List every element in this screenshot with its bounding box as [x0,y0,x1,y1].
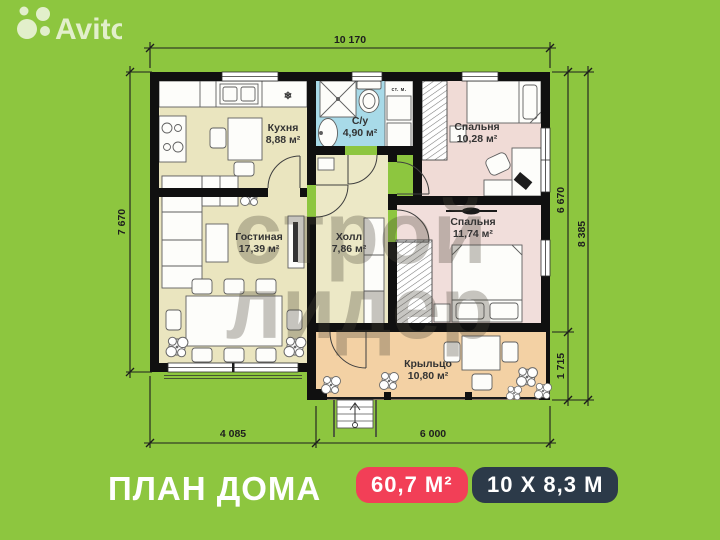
room-area: 17,39 м² [239,243,280,255]
listing-image: строй лидер Кухня 8,88 м² С/у 4,90 м² Сп… [0,0,720,540]
fridge-icon: ❄ [284,91,292,102]
window [462,72,498,81]
watermark-line2: лидер [226,258,495,357]
dim-right-total: 8 385 [576,221,588,247]
window [352,72,382,81]
dim-width-total: 10 170 [334,34,366,46]
room-area: 10,80 м² [408,370,449,382]
avito-dot-icon [20,7,29,16]
avito-dot-icon [40,26,50,36]
room-label: С/у [352,115,369,127]
dim-bottom-left: 4 085 [220,428,246,440]
plant-icon [166,337,188,357]
page-title: ПЛАН ДОМА [108,470,321,508]
dim-left-height: 7 670 [116,209,128,235]
bed-bedroom1 [467,81,541,123]
area-badge: 60,7 М² [356,467,468,503]
washing-machine-label: ст. м. [391,87,406,93]
room-label: Гостиная [235,231,282,243]
coffee-table [206,224,228,262]
floor-plan: строй лидер Кухня 8,88 м² С/у 4,90 м² Сп… [0,0,720,540]
room-area: 8,88 м² [266,134,301,146]
plant-icon [322,377,341,394]
room-area: 7,86 м² [332,243,367,255]
room-area: 4,90 м² [343,127,378,139]
wardrobe-bedroom1 [422,81,447,160]
dim-bottom-right: 6 000 [420,428,446,440]
window [541,128,550,192]
dim-right-upper: 6 670 [555,187,567,213]
room-label: Холл [336,231,362,243]
avito-logo: Avito [0,0,122,46]
room-label: Крыльцо [404,358,452,370]
room-label: Спальня [454,121,499,133]
window [164,363,302,379]
room-area: 11,74 м² [453,228,493,240]
washbasin [319,119,338,148]
plant-icon [380,373,399,390]
window [541,240,550,276]
room-label: Спальня [450,216,495,228]
avito-dot-icon [36,7,50,21]
room-label: Кухня [268,122,299,134]
avito-wordmark: Avito [55,13,122,46]
plant-icon [517,368,538,387]
watermark: строй лидер [226,183,495,357]
plant-icon [534,383,551,398]
size-badge: 10 Х 8,3 М [472,467,618,503]
plant-icon [506,386,521,400]
toilet [357,81,381,113]
stove [159,116,186,162]
dim-right-lower: 1 715 [555,353,567,379]
window [222,72,278,81]
stairs [334,400,376,437]
avito-dot-icon [17,19,37,39]
shower [320,81,356,117]
room-area: 10,28 м² [457,133,498,145]
